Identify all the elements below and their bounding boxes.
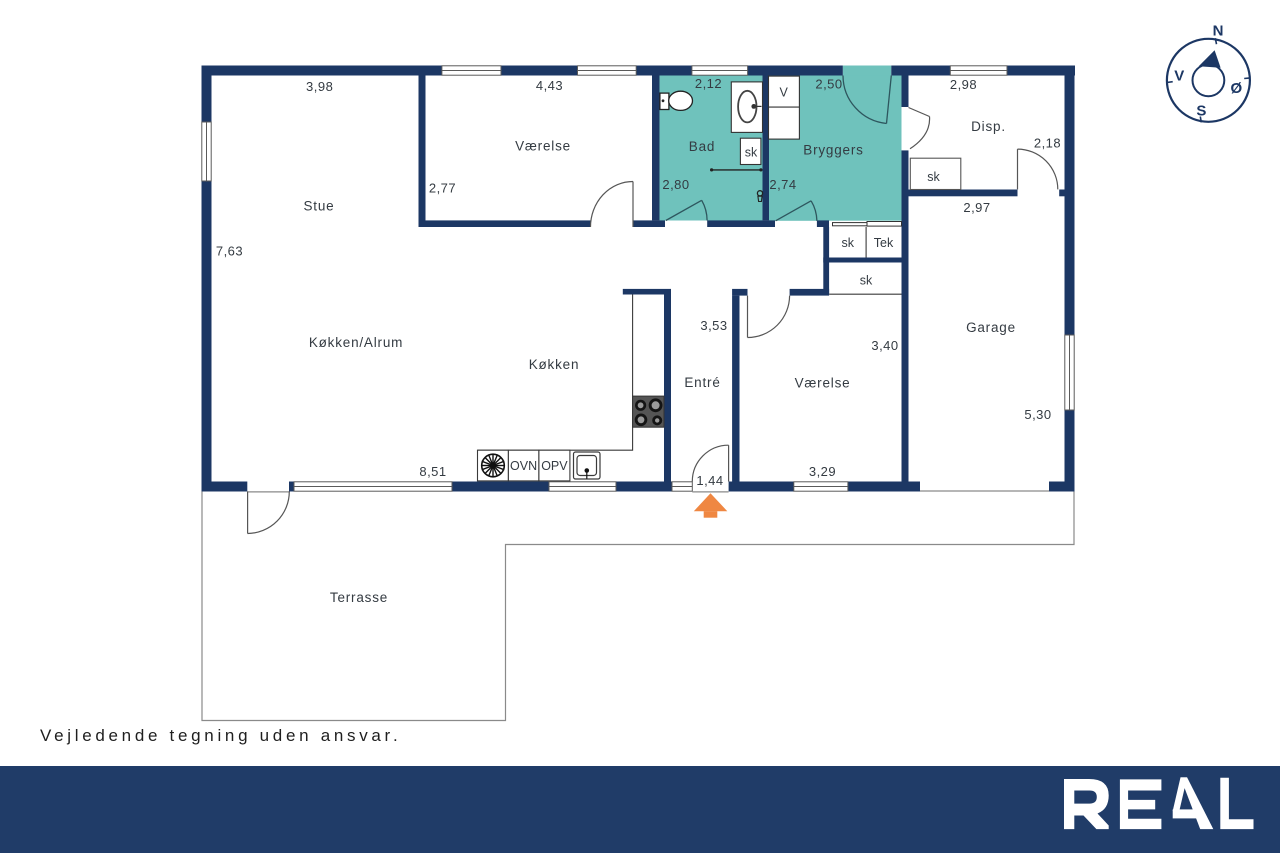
svg-text:N: N bbox=[1213, 23, 1224, 40]
svg-text:1,44: 1,44 bbox=[696, 473, 723, 488]
svg-text:2,74: 2,74 bbox=[769, 177, 796, 192]
svg-text:2,12: 2,12 bbox=[695, 76, 722, 91]
svg-text:Bad: Bad bbox=[689, 139, 715, 154]
svg-text:sk: sk bbox=[860, 274, 873, 288]
svg-text:OVN: OVN bbox=[510, 459, 537, 473]
svg-text:3,53: 3,53 bbox=[700, 318, 727, 333]
svg-text:2,18: 2,18 bbox=[1034, 136, 1061, 151]
svg-text:Tek: Tek bbox=[874, 236, 894, 250]
svg-text:4,43: 4,43 bbox=[536, 78, 563, 93]
svg-text:3,40: 3,40 bbox=[871, 338, 898, 353]
svg-text:2,77: 2,77 bbox=[429, 181, 456, 196]
svg-text:Ø: Ø bbox=[1230, 80, 1242, 97]
svg-text:8,51: 8,51 bbox=[419, 464, 446, 479]
svg-text:sk: sk bbox=[927, 170, 940, 184]
svg-text:Bryggers: Bryggers bbox=[803, 143, 863, 158]
svg-text:Vejledende tegning uden ansvar: Vejledende tegning uden ansvar. bbox=[40, 726, 401, 745]
svg-text:V: V bbox=[780, 86, 789, 100]
svg-text:sk: sk bbox=[842, 236, 855, 250]
svg-text:2,97: 2,97 bbox=[963, 200, 990, 215]
svg-text:7,63: 7,63 bbox=[216, 244, 243, 259]
svg-text:5,30: 5,30 bbox=[1024, 407, 1051, 422]
svg-text:Køkken: Køkken bbox=[529, 357, 580, 372]
svg-text:Stue: Stue bbox=[304, 199, 335, 214]
svg-text:Værelse: Værelse bbox=[515, 139, 571, 154]
svg-text:Disp.: Disp. bbox=[971, 119, 1006, 134]
svg-text:OPV: OPV bbox=[541, 459, 568, 473]
svg-text:2,80: 2,80 bbox=[662, 177, 689, 192]
svg-text:Værelse: Værelse bbox=[795, 376, 851, 391]
svg-text:Garage: Garage bbox=[966, 320, 1016, 335]
svg-text:sk: sk bbox=[745, 146, 758, 160]
svg-text:Entré: Entré bbox=[684, 375, 720, 390]
svg-text:2,50: 2,50 bbox=[815, 77, 842, 92]
svg-text:Køkken/Alrum: Køkken/Alrum bbox=[309, 335, 403, 350]
svg-text:S: S bbox=[1196, 102, 1206, 119]
svg-text:2,98: 2,98 bbox=[950, 77, 977, 92]
svg-text:V: V bbox=[1174, 68, 1184, 85]
svg-text:3,98: 3,98 bbox=[306, 79, 333, 94]
svg-text:Terrasse: Terrasse bbox=[330, 590, 388, 605]
svg-text:3,29: 3,29 bbox=[809, 464, 836, 479]
